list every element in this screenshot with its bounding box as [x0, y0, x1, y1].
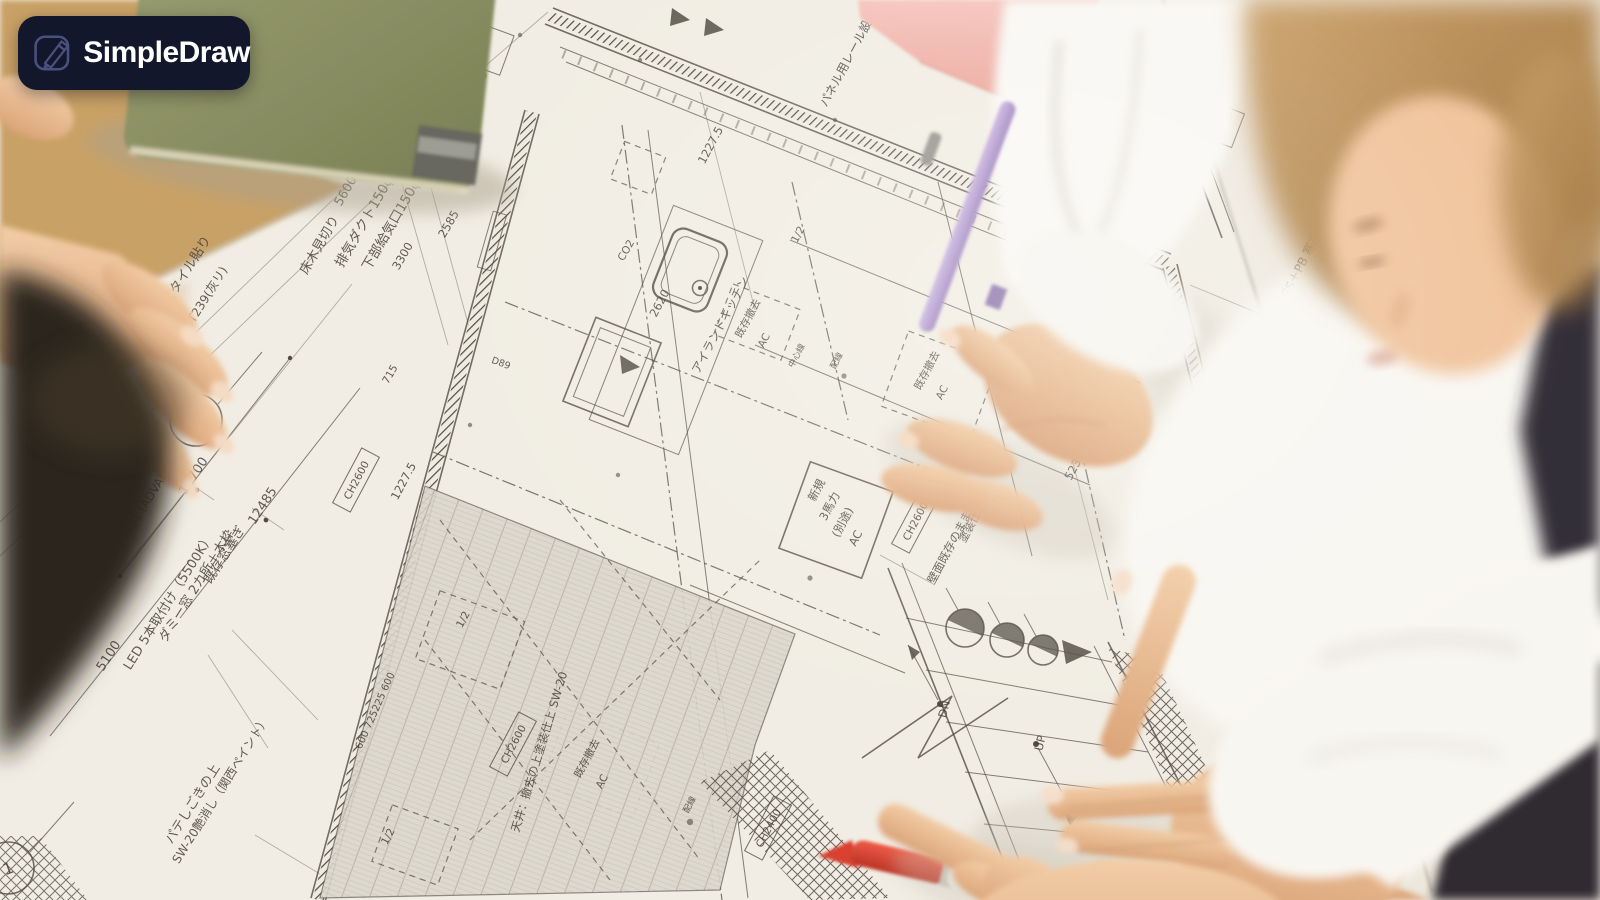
pencil-square-icon [33, 30, 72, 76]
warm-tint [0, 0, 1600, 900]
app-name: SimpleDraw [83, 36, 250, 70]
photo-scene: 16号給湯器 設置 ≒1525 パネル用レール設置 室外機 4Fへ移設 床木見切… [0, 0, 1600, 900]
app-logo-badge: SimpleDraw [18, 16, 250, 90]
hero-photo-architectural-plans: 16号給湯器 設置 ≒1525 パネル用レール設置 室外機 4Fへ移設 床木見切… [0, 0, 1600, 900]
